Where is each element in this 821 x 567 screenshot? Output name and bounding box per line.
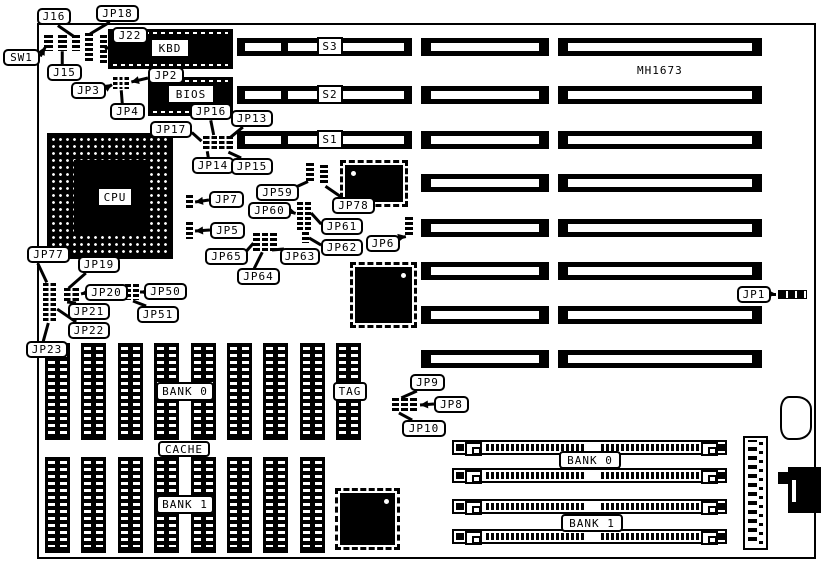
arrowhead-jp8 — [420, 400, 429, 409]
cache-bank0-label: BANK 0 — [156, 382, 214, 401]
jp8-jumper — [401, 398, 408, 412]
jp5-jumper — [186, 222, 193, 239]
isa-slot-right-2 — [558, 86, 762, 104]
dip-chip — [45, 457, 70, 553]
qfp-chip-a-pin1-dot — [351, 171, 356, 176]
simm-socket-3 — [452, 499, 727, 514]
callout-jp78: JP78 — [332, 197, 375, 214]
dip-chip — [227, 457, 252, 553]
callout-jp5: JP5 — [210, 222, 245, 239]
dip-chip — [227, 343, 252, 440]
dip-chip — [118, 343, 143, 440]
callout-jp17: JP17 — [150, 121, 192, 138]
motherboard-diagram: MH1673 S3S2S1KBDBIOSCPUBANK 0TAGCACHEBAN… — [0, 0, 821, 567]
callout-jp23: JP23 — [26, 341, 68, 358]
simm-latch-left — [465, 501, 482, 515]
slot-contact-stripe — [568, 91, 752, 99]
simm-end-tab — [717, 472, 725, 479]
slot-contact-stripe — [431, 267, 539, 275]
jp60-block — [297, 202, 311, 230]
dip-chip — [81, 343, 106, 440]
jp7-jumper — [186, 195, 193, 210]
callout-jp4: JP4 — [110, 103, 145, 120]
isa-slot-right-6 — [558, 262, 762, 280]
callout-jp2: JP2 — [148, 67, 184, 84]
isa-slot-right-4 — [558, 174, 762, 192]
isa-slot-mid-5 — [421, 219, 549, 237]
j15-header — [58, 35, 67, 51]
slot-contact-stripe — [431, 91, 539, 99]
simm-contacts — [601, 472, 699, 479]
kbd-chip-label: KBD — [152, 40, 188, 56]
isa-slot-mid-4 — [421, 174, 549, 192]
callout-jp77: JP77 — [27, 246, 70, 263]
callout-jp7: JP7 — [209, 191, 244, 208]
isa-slot-mid-7 — [421, 306, 549, 324]
dip-chip — [300, 457, 325, 553]
callout-jp10: JP10 — [402, 420, 446, 437]
callout-jp20: JP20 — [85, 284, 128, 301]
simm-latch-right — [701, 501, 718, 515]
simm-end-tab — [717, 533, 725, 540]
jp9-jumper — [392, 398, 399, 412]
slot-contact-stripe — [431, 311, 539, 319]
jp2-jp3-jp4-block — [113, 77, 129, 89]
slot-contact-stripe — [568, 355, 752, 363]
simm-socket-2 — [452, 468, 727, 483]
dip-chip — [263, 343, 288, 440]
callout-jp59: JP59 — [256, 184, 299, 201]
simm-latch-left — [465, 470, 482, 484]
jp17-block — [203, 136, 233, 151]
callout-jp60: JP60 — [248, 202, 291, 219]
bios-chip-label: BIOS — [169, 86, 213, 102]
qfp-chip-c — [335, 488, 400, 550]
jp77-header — [43, 283, 56, 322]
simm-end-tab — [456, 533, 464, 540]
slot-contact-stripe — [431, 136, 539, 144]
callout-jp64: JP64 — [237, 268, 280, 285]
slot-contact-stripe — [568, 43, 752, 51]
simm-contacts — [486, 503, 586, 510]
isa-slot-right-8 — [558, 350, 762, 368]
isa-slot-right-5 — [558, 219, 762, 237]
slot-contact-stripe — [431, 43, 539, 51]
callout-sw1: SW1 — [3, 49, 40, 66]
callout-jp16: JP16 — [190, 103, 232, 120]
dip-chip — [81, 457, 106, 553]
slot-contact-stripe — [245, 91, 281, 99]
callout-jp14: JP14 — [192, 157, 234, 174]
callout-jp15: JP15 — [231, 158, 273, 175]
slot-label-s1: S1 — [317, 130, 343, 149]
isa-slot-mid-3 — [421, 131, 549, 149]
dip-chip — [300, 343, 325, 440]
tag-label: TAG — [333, 382, 367, 401]
simm-contacts — [601, 503, 699, 510]
qfp-chip-b-pin1-dot — [401, 273, 406, 278]
dip-chip — [118, 457, 143, 553]
dip-chip — [263, 457, 288, 553]
slot-contact-stripe — [245, 136, 281, 144]
cache-label: CACHE — [158, 441, 210, 457]
isa-slot-mid-6 — [421, 262, 549, 280]
simm-end-tab — [717, 444, 725, 451]
qfp-chip-c-pin1-dot — [384, 499, 389, 504]
callout-jp6: JP6 — [366, 235, 400, 252]
arrowhead-jp7 — [194, 197, 203, 206]
callout-jp51: JP51 — [137, 306, 179, 323]
jp6-jumper — [405, 217, 413, 237]
simm-end-tab — [717, 503, 725, 510]
slot-contact-stripe — [431, 355, 539, 363]
cpu-label: CPU — [99, 189, 131, 205]
simm-latch-right — [701, 442, 718, 456]
jp10-jumper — [410, 398, 417, 412]
callout-jp21: JP21 — [68, 303, 110, 320]
slot-contact-stripe — [568, 311, 752, 319]
keyboard-din-notch — [778, 472, 789, 484]
slot-contact-stripe — [568, 224, 752, 232]
board-model-text: MH1673 — [637, 64, 683, 77]
simm-end-tab — [456, 444, 464, 451]
isa-slot-mid-1 — [421, 38, 549, 56]
callout-jp9: JP9 — [410, 374, 445, 391]
callout-jp3: JP3 — [71, 82, 106, 99]
callout-jp18: JP18 — [96, 5, 139, 22]
jp1-connector — [778, 290, 807, 299]
cache-bank1-label: BANK 1 — [156, 495, 214, 514]
jp59-jumper-b — [320, 165, 328, 185]
slot-contact-stripe — [431, 179, 539, 187]
simm-bank0-label: BANK 0 — [559, 451, 621, 469]
slot-contact-stripe — [288, 136, 404, 144]
simm-contacts — [601, 533, 699, 540]
arrowhead-jp5 — [195, 226, 204, 235]
simm-contacts — [601, 444, 699, 451]
slot-contact-stripe — [288, 91, 404, 99]
callout-jp1: JP1 — [737, 286, 771, 303]
qfp-chip-b — [350, 262, 417, 328]
callout-jp62: JP62 — [321, 239, 363, 256]
callout-jp61: JP61 — [321, 218, 363, 235]
keyboard-din-slot — [792, 480, 796, 502]
isa-slot-right-7 — [558, 306, 762, 324]
isa-slot-mid-8 — [421, 350, 549, 368]
simm-contacts — [486, 533, 586, 540]
jp18-header — [85, 33, 93, 61]
callout-jp22: JP22 — [68, 322, 110, 339]
callout-jp50: JP50 — [144, 283, 187, 300]
callout-j15: J15 — [47, 64, 82, 81]
isa-slot-right-3 — [558, 131, 762, 149]
simm-bank1-label: BANK 1 — [561, 514, 623, 532]
simm-latch-right — [701, 470, 718, 484]
external-port-outline — [780, 396, 812, 440]
callout-jp8: JP8 — [434, 396, 469, 413]
simm-contacts — [486, 472, 586, 479]
slot-contact-stripe — [568, 267, 752, 275]
power-connector — [743, 436, 768, 550]
callout-jp19: JP19 — [78, 256, 120, 273]
simm-end-tab — [456, 503, 464, 510]
callout-j22: J22 — [112, 27, 148, 44]
slot-contact-stripe — [568, 136, 752, 144]
slot-contact-stripe — [245, 43, 281, 51]
simm-contacts — [486, 444, 586, 451]
simm-latch-right — [701, 531, 718, 545]
slot-contact-stripe — [431, 224, 539, 232]
slot-label-s2: S2 — [317, 85, 343, 104]
callout-j16: J16 — [37, 8, 71, 25]
simm-latch-left — [465, 531, 482, 545]
slot-label-s3: S3 — [317, 37, 343, 56]
callout-jp65: JP65 — [205, 248, 248, 265]
isa-slot-right-1 — [558, 38, 762, 56]
leader-j15 — [61, 51, 64, 64]
isa-slot-mid-2 — [421, 86, 549, 104]
slot-contact-stripe — [288, 43, 404, 51]
slot-contact-stripe — [568, 179, 752, 187]
simm-latch-left — [465, 442, 482, 456]
simm-end-tab — [456, 472, 464, 479]
callout-jp63: JP63 — [280, 248, 320, 265]
callout-jp13: JP13 — [231, 110, 273, 127]
